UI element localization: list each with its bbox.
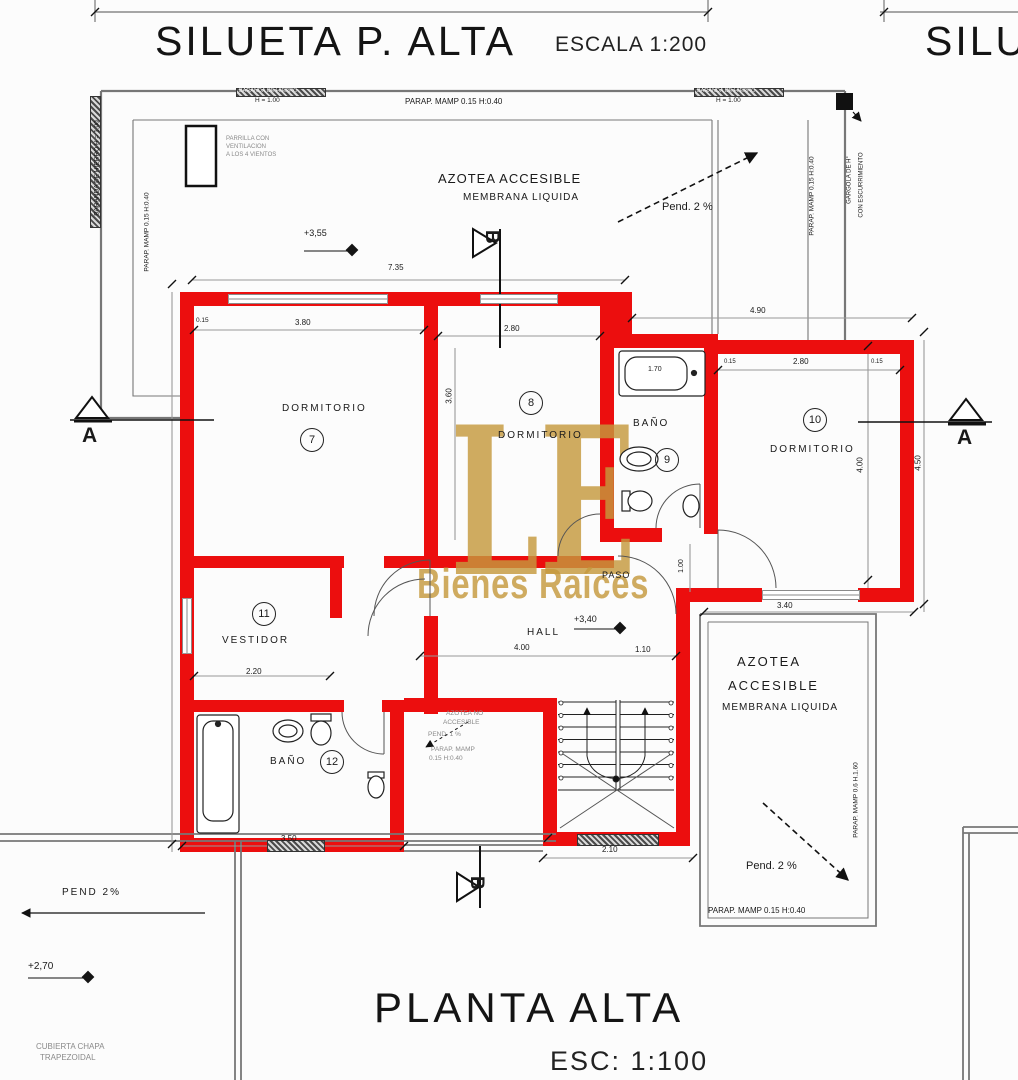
- label-hall: HALL: [527, 627, 560, 639]
- label-parap-small-2: 0.15 H:0.40: [429, 755, 463, 762]
- room-number-9: 9: [655, 448, 679, 472]
- label-escurrimiento: CON ESCURRIMIENTO: [859, 152, 866, 217]
- dim-2-80-d10: 2.80: [793, 357, 809, 366]
- label-azotea-no-2: ACCESIBLE: [443, 719, 480, 726]
- section-b-top-label: B: [480, 230, 502, 244]
- level-3-55: +3,55: [304, 228, 327, 238]
- label-bano-12: BAÑO: [270, 756, 306, 768]
- section-a-right-label: A: [957, 426, 972, 450]
- label-azotea-br-2: ACCESIBLE: [728, 679, 819, 694]
- dim-0-15-b: 0.15: [724, 359, 736, 366]
- label-azotea-top: AZOTEA ACCESIBLE: [438, 172, 581, 187]
- label-paso: PASO: [602, 570, 630, 580]
- label-pend-br: Pend. 2 %: [746, 860, 797, 873]
- label-parap-right: PARAP. MAMP 0.15 H:0.40: [808, 156, 815, 235]
- dim-2-80-d8: 2.80: [504, 324, 520, 333]
- floor-plan-canvas: LE Bienes Raíces: [0, 0, 1018, 1080]
- dim-2-10: 2.10: [602, 845, 618, 854]
- label-pend-small: PEND. 1 %: [428, 731, 461, 738]
- level-2-70: +2,70: [28, 961, 53, 973]
- dim-4-50: 4.50: [913, 455, 922, 471]
- level-3-40: +3,40: [574, 614, 597, 624]
- label-dormitorio-8: DORMITORIO: [498, 430, 583, 442]
- room-number-7: 7: [300, 428, 324, 452]
- dim-0-15-a: 0.15: [196, 317, 209, 324]
- label-azotea-br-1: AZOTEA: [737, 655, 801, 670]
- label-h100-left: H = 1.00: [255, 97, 280, 104]
- label-parap-top: PARAP. MAMP 0.15 H:0.40: [405, 97, 502, 106]
- page-title-right-partial: SILU: [925, 18, 1018, 65]
- label-baranda-top-left: BARANDA DE HIERRO: [239, 88, 297, 94]
- label-parrilla-1: PARRILLA CON: [226, 136, 269, 143]
- label-azotea-no-1: AZOTEA NO: [446, 710, 483, 717]
- section-b-bottom-label: B: [465, 876, 487, 890]
- label-baranda-left: BARANDA DE HIERRO H = 1.00: [93, 120, 100, 216]
- room-number-8: 8: [519, 391, 543, 415]
- label-parap-br: PARAP. MAMP 0.15 H:0.40: [708, 906, 805, 915]
- label-baranda-top-right: BARANDA DE HIERRO: [697, 88, 755, 94]
- page-title-scale: ESCALA 1:200: [555, 33, 707, 57]
- label-bano-9: BAÑO: [633, 418, 669, 430]
- section-a-left-label: A: [82, 424, 97, 448]
- label-parap-left: PARAP. MAMP 0.15 H:0.40: [143, 192, 150, 271]
- dim-0-15-c: 0.15: [871, 359, 883, 366]
- room-number-11: 11: [252, 602, 276, 626]
- dim-4-00-hall: 4.00: [514, 643, 530, 652]
- dim-4-00-d10: 4.00: [855, 457, 864, 473]
- label-parrilla-2: VENTILACION: [226, 144, 266, 151]
- label-h100-right: H = 1.00: [716, 97, 741, 104]
- label-vestidor: VESTIDOR: [222, 635, 289, 647]
- label-parrilla-3: A LOS 4 VIENTOS: [226, 152, 276, 159]
- label-pend-left: PEND 2%: [62, 887, 121, 899]
- dim-2-20: 2.20: [246, 667, 262, 676]
- label-gargola: GARGOLA DE H°: [847, 156, 854, 204]
- label-parap-small-1: PARAP. MAMP: [431, 746, 475, 753]
- bottom-title: PLANTA ALTA: [374, 984, 684, 1032]
- dim-7-35: 7.35: [388, 263, 404, 272]
- label-dormitorio-10: DORMITORIO: [770, 444, 855, 456]
- bottom-title-scale: ESC: 1:100: [550, 1046, 708, 1077]
- labels-layer: SILUETA P. ALTA ESCALA 1:200 SILU PLANTA…: [0, 0, 1018, 1080]
- page-title: SILUETA P. ALTA: [155, 18, 516, 65]
- room-number-12: 12: [320, 750, 344, 774]
- dim-3-50: 3.50: [281, 834, 297, 843]
- dim-3-40: 3.40: [777, 601, 793, 610]
- label-membrana-top: MEMBRANA LIQUIDA: [463, 192, 579, 204]
- dim-1-70: 1.70: [648, 366, 662, 374]
- label-pend-top: Pend. 2 %: [662, 201, 713, 214]
- dim-3-60: 3.60: [444, 388, 453, 404]
- label-dormitorio-7: DORMITORIO: [282, 403, 367, 415]
- dim-1-10: 1.10: [635, 645, 651, 654]
- room-number-10: 10: [803, 408, 827, 432]
- dim-1-00-paso: 1.00: [678, 559, 686, 573]
- label-cubierta-1: CUBIERTA CHAPA: [36, 1042, 104, 1051]
- dim-4-90: 4.90: [750, 306, 766, 315]
- label-cubierta-2: TRAPEZOIDAL: [40, 1053, 96, 1062]
- label-membrana-br: MEMBRANA LIQUIDA: [722, 702, 838, 714]
- label-parap-br-right: PARAP. MAMP 0.6 H.1.60: [852, 762, 859, 838]
- dim-3-80: 3.80: [295, 318, 311, 327]
